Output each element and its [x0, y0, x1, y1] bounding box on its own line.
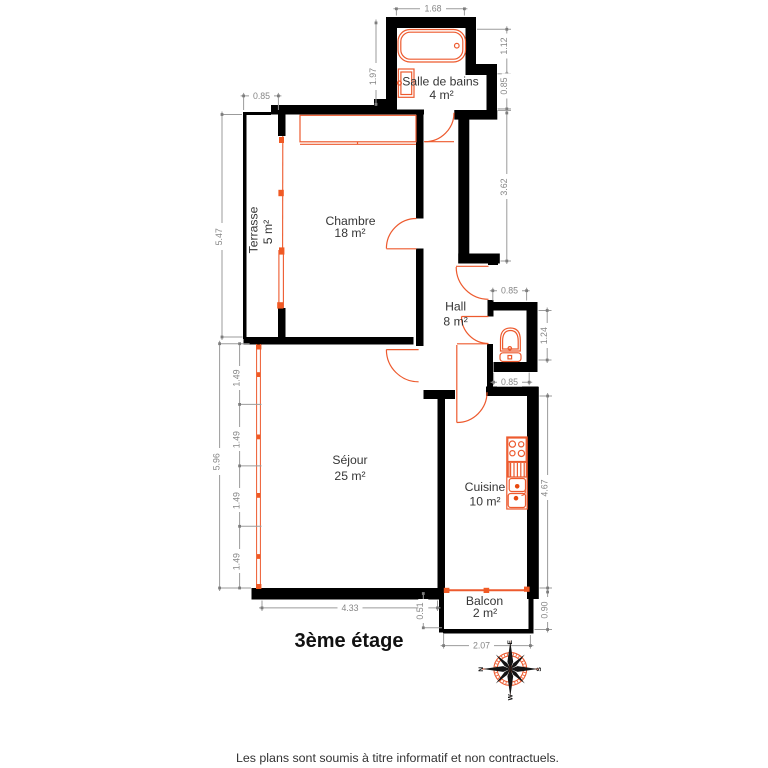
svg-text:Hall: Hall: [445, 300, 466, 314]
svg-text:2.07: 2.07: [473, 641, 490, 651]
svg-text:W: W: [507, 693, 514, 700]
svg-text:1.97: 1.97: [368, 68, 378, 85]
svg-text:Terrasse: Terrasse: [247, 206, 261, 253]
svg-text:S: S: [536, 666, 543, 671]
svg-text:1.49: 1.49: [232, 492, 242, 509]
svg-text:4.67: 4.67: [540, 479, 550, 496]
svg-text:0.85: 0.85: [501, 377, 518, 387]
svg-text:Cuisine: Cuisine: [465, 480, 506, 494]
svg-text:Les plans sont soumis à titre: Les plans sont soumis à titre informatif…: [236, 751, 559, 765]
svg-text:4.33: 4.33: [341, 603, 358, 613]
svg-text:5 m²: 5 m²: [261, 220, 275, 244]
svg-text:0.85: 0.85: [499, 77, 509, 94]
svg-text:10 m²: 10 m²: [469, 495, 500, 509]
svg-text:1.49: 1.49: [232, 431, 242, 448]
svg-text:5.96: 5.96: [212, 453, 222, 470]
svg-text:3ème étage: 3ème étage: [295, 630, 404, 652]
svg-text:Séjour: Séjour: [332, 453, 367, 467]
svg-text:1.49: 1.49: [232, 553, 242, 570]
svg-text:1.24: 1.24: [539, 327, 549, 344]
svg-text:3.62: 3.62: [499, 178, 509, 195]
svg-text:0.51: 0.51: [415, 602, 425, 619]
svg-text:1.12: 1.12: [499, 37, 509, 54]
svg-text:1.68: 1.68: [424, 4, 441, 14]
svg-text:4 m²: 4 m²: [429, 88, 453, 102]
svg-text:5.47: 5.47: [214, 228, 224, 245]
svg-text:N: N: [478, 667, 485, 672]
svg-text:25 m²: 25 m²: [334, 469, 365, 483]
svg-text:8 m²: 8 m²: [443, 315, 467, 329]
svg-text:0.90: 0.90: [540, 601, 550, 618]
svg-text:0.85: 0.85: [253, 91, 270, 101]
svg-text:18 m²: 18 m²: [334, 226, 365, 240]
svg-text:0.85: 0.85: [501, 286, 518, 296]
svg-text:Salle de bains: Salle de bains: [402, 75, 479, 89]
svg-text:2 m²: 2 m²: [473, 606, 497, 620]
svg-text:1.49: 1.49: [232, 369, 242, 386]
svg-text:E: E: [507, 639, 514, 644]
